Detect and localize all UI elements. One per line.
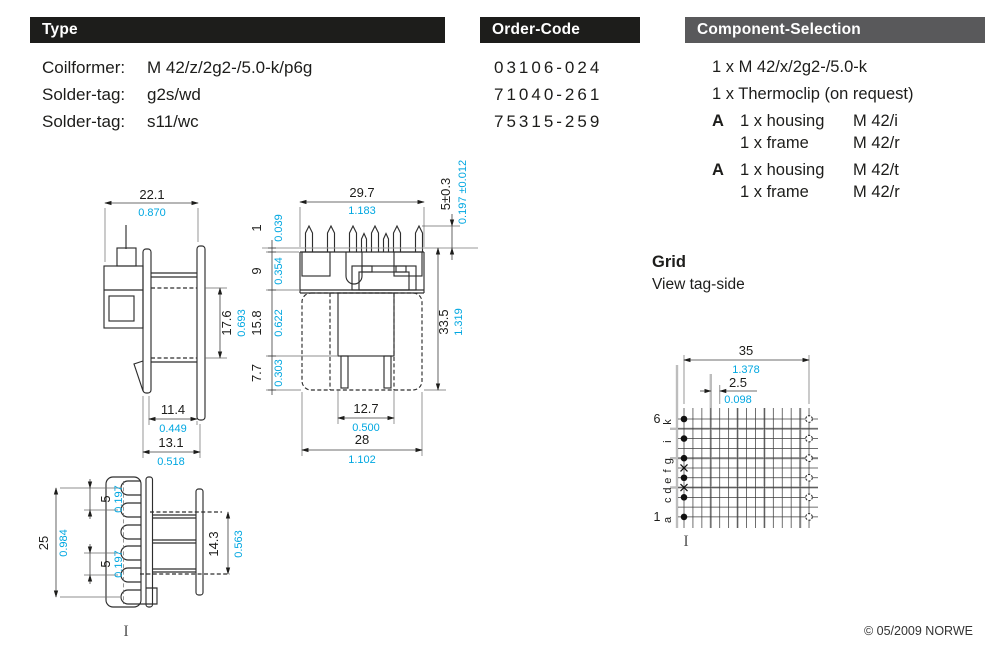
order-code-header-label: Order-Code [492, 21, 580, 38]
variant-marker: A [712, 112, 724, 131]
grid-section-subtitle: View tag-side [652, 276, 745, 294]
dim-label-mm: 5 [98, 560, 113, 567]
type-row-coilformer: Coilformer:M 42/z/2g2-/5.0-k/p6g [42, 58, 312, 78]
front-view-drawing: 29.7 1.183 5±0.3 0.197 ±0.012 1 0.039 9 … [250, 150, 490, 480]
grid-section-title: Grid [652, 253, 686, 272]
dim-front-pin-length: 5±0.3 0.197 ±0.012 [422, 160, 469, 260]
dim-label-inch: 1.319 [453, 308, 465, 336]
dim-label-inch: 1.102 [348, 454, 376, 466]
dim-label-mm: 17.6 [219, 310, 234, 335]
dim-label-mm: 29.7 [349, 185, 374, 200]
dim-label-mm: 13.1 [158, 435, 183, 450]
coilformer-side-outline [104, 225, 205, 420]
dim-label-mm: 25 [36, 536, 51, 550]
dim-label-mm: 12.7 [353, 401, 378, 416]
type-row-value: M 42/z/2g2-/5.0-k/p6g [147, 58, 312, 77]
type-header-bar: Type [30, 17, 445, 43]
dim-label-mm: 9 [249, 267, 264, 274]
dim-side-inner-width: 11.4 0.449 [149, 396, 197, 435]
copyright-note: © 05/2009 NORWE [864, 624, 973, 638]
type-row-solder-tag-1: Solder-tag:g2s/wd [42, 85, 201, 105]
grid-row-letter: c [662, 497, 674, 503]
type-row-label: Solder-tag: [42, 85, 147, 105]
variant-marker: A [712, 161, 724, 180]
component-qty: 1 x housing [740, 161, 824, 180]
grid-row-number-top: 6 [654, 412, 661, 426]
dim-label-mm: 2.5 [729, 375, 747, 390]
order-code-header-bar: Order-Code [480, 17, 640, 43]
dim-label-mm: 35 [739, 343, 753, 358]
dim-label-mm: 7.7 [249, 364, 264, 382]
dim-label-mm: 15.8 [249, 310, 264, 335]
dim-side-width: 22.1 0.870 [105, 187, 198, 262]
dim-label-inch: 0.303 [273, 359, 285, 387]
dim-end-window: 14.3 0.563 [206, 512, 245, 574]
grid-row-letter: f [662, 469, 674, 473]
dim-end-height: 25 0.984 [36, 488, 120, 597]
grid-row-letter: k [662, 419, 674, 425]
grid-row-letter: a [662, 516, 674, 523]
dim-label-inch: 0.693 [236, 309, 248, 337]
component-qty: 1 x housing [740, 112, 824, 131]
dim-label-inch: 0.197 [113, 485, 125, 513]
dim-label-inch: 0.039 [273, 214, 285, 242]
grid-row-letter: d [662, 487, 674, 493]
type-row-label: Coilformer: [42, 58, 147, 78]
component-part: M 42/t [853, 161, 899, 180]
dim-label-inch: 0.984 [58, 529, 70, 557]
grid-row-letter: g [662, 458, 674, 464]
dim-label-mm: 5 [98, 495, 113, 502]
dim-label-mm: 5±0.3 [438, 178, 453, 210]
dim-side-winding-height: 17.6 0.693 [205, 288, 248, 358]
dim-label-mm: 22.1 [139, 187, 164, 202]
section-marker: I [123, 623, 128, 640]
component-part: M 42/r [853, 134, 900, 153]
dim-label-mm: 28 [355, 432, 369, 447]
dim-label-inch: 0.197 [113, 550, 125, 578]
component-selection-header-bar: Component-Selection [685, 17, 985, 43]
component-selection-header-label: Component-Selection [697, 21, 861, 38]
dim-label-inch: 0.563 [233, 530, 245, 558]
grid-row-number-bottom: 1 [654, 510, 661, 524]
type-row-value: s11/wc [147, 112, 199, 131]
dim-end-pitch-top: 5 0.197 [84, 479, 125, 519]
dim-label-mm: 33.5 [436, 309, 451, 334]
grid-row-letter: e [662, 478, 674, 484]
coilformer-front-outline [262, 226, 478, 390]
type-row-value: g2s/wd [147, 85, 201, 104]
dim-end-pitch-mid: 5 0.197 [84, 544, 125, 584]
dim-label-mm: 14.3 [206, 531, 221, 556]
dim-label-inch: 0.354 [273, 257, 285, 285]
dim-label-inch: 0.449 [159, 423, 187, 435]
dim-label-inch: 0.197 ±0.012 [457, 160, 469, 224]
section-marker: I [683, 533, 688, 550]
grid-row-letter: i [662, 440, 674, 442]
datasheet-page: { "page": { "copyright": "© 05/2009 NORW… [0, 0, 1000, 655]
dim-label-mm: 11.4 [161, 402, 185, 417]
component-part: M 42/i [853, 112, 898, 131]
dim-label-inch: 1.183 [348, 205, 376, 217]
type-row-label: Solder-tag: [42, 112, 147, 132]
component-item-2: 1 x Thermoclip (on request) [712, 85, 913, 104]
dim-front-total-height: 33.5 1.319 [424, 248, 465, 390]
type-header-label: Type [42, 21, 78, 38]
component-part: M 42/r [853, 183, 900, 202]
end-view-drawing: 25 0.984 5 0.197 5 0.197 14.3 0.563 I [38, 455, 263, 645]
component-qty: 1 x frame [740, 183, 809, 202]
dim-label-inch: 0.870 [138, 207, 166, 219]
order-code-3: 75315-259 [494, 112, 602, 132]
dim-label-inch: 0.098 [724, 394, 752, 406]
side-view-drawing: 22.1 0.870 17.6 0.693 11.4 0.449 13.1 0.… [35, 185, 265, 475]
dim-label-inch: 0.622 [273, 309, 285, 337]
type-row-solder-tag-2: Solder-tag:s11/wc [42, 112, 199, 132]
component-item-1: 1 x M 42/x/2g2-/5.0-k [712, 58, 867, 77]
dim-label-mm: 1 [249, 224, 264, 231]
grid-drawing: 35 1.378 2.5 0.098 6 1 k i g f e d c a I [640, 340, 885, 555]
dim-grid-pitch: 2.5 0.098 [700, 375, 757, 406]
component-qty: 1 x frame [740, 134, 809, 153]
order-code-1: 03106-024 [494, 58, 602, 78]
dim-front-window-width: 12.7 0.500 [338, 390, 394, 434]
dim-front-left-chain: 1 0.039 9 0.354 15.8 0.622 7.7 0.303 [249, 214, 337, 395]
order-code-2: 71040-261 [494, 85, 602, 105]
